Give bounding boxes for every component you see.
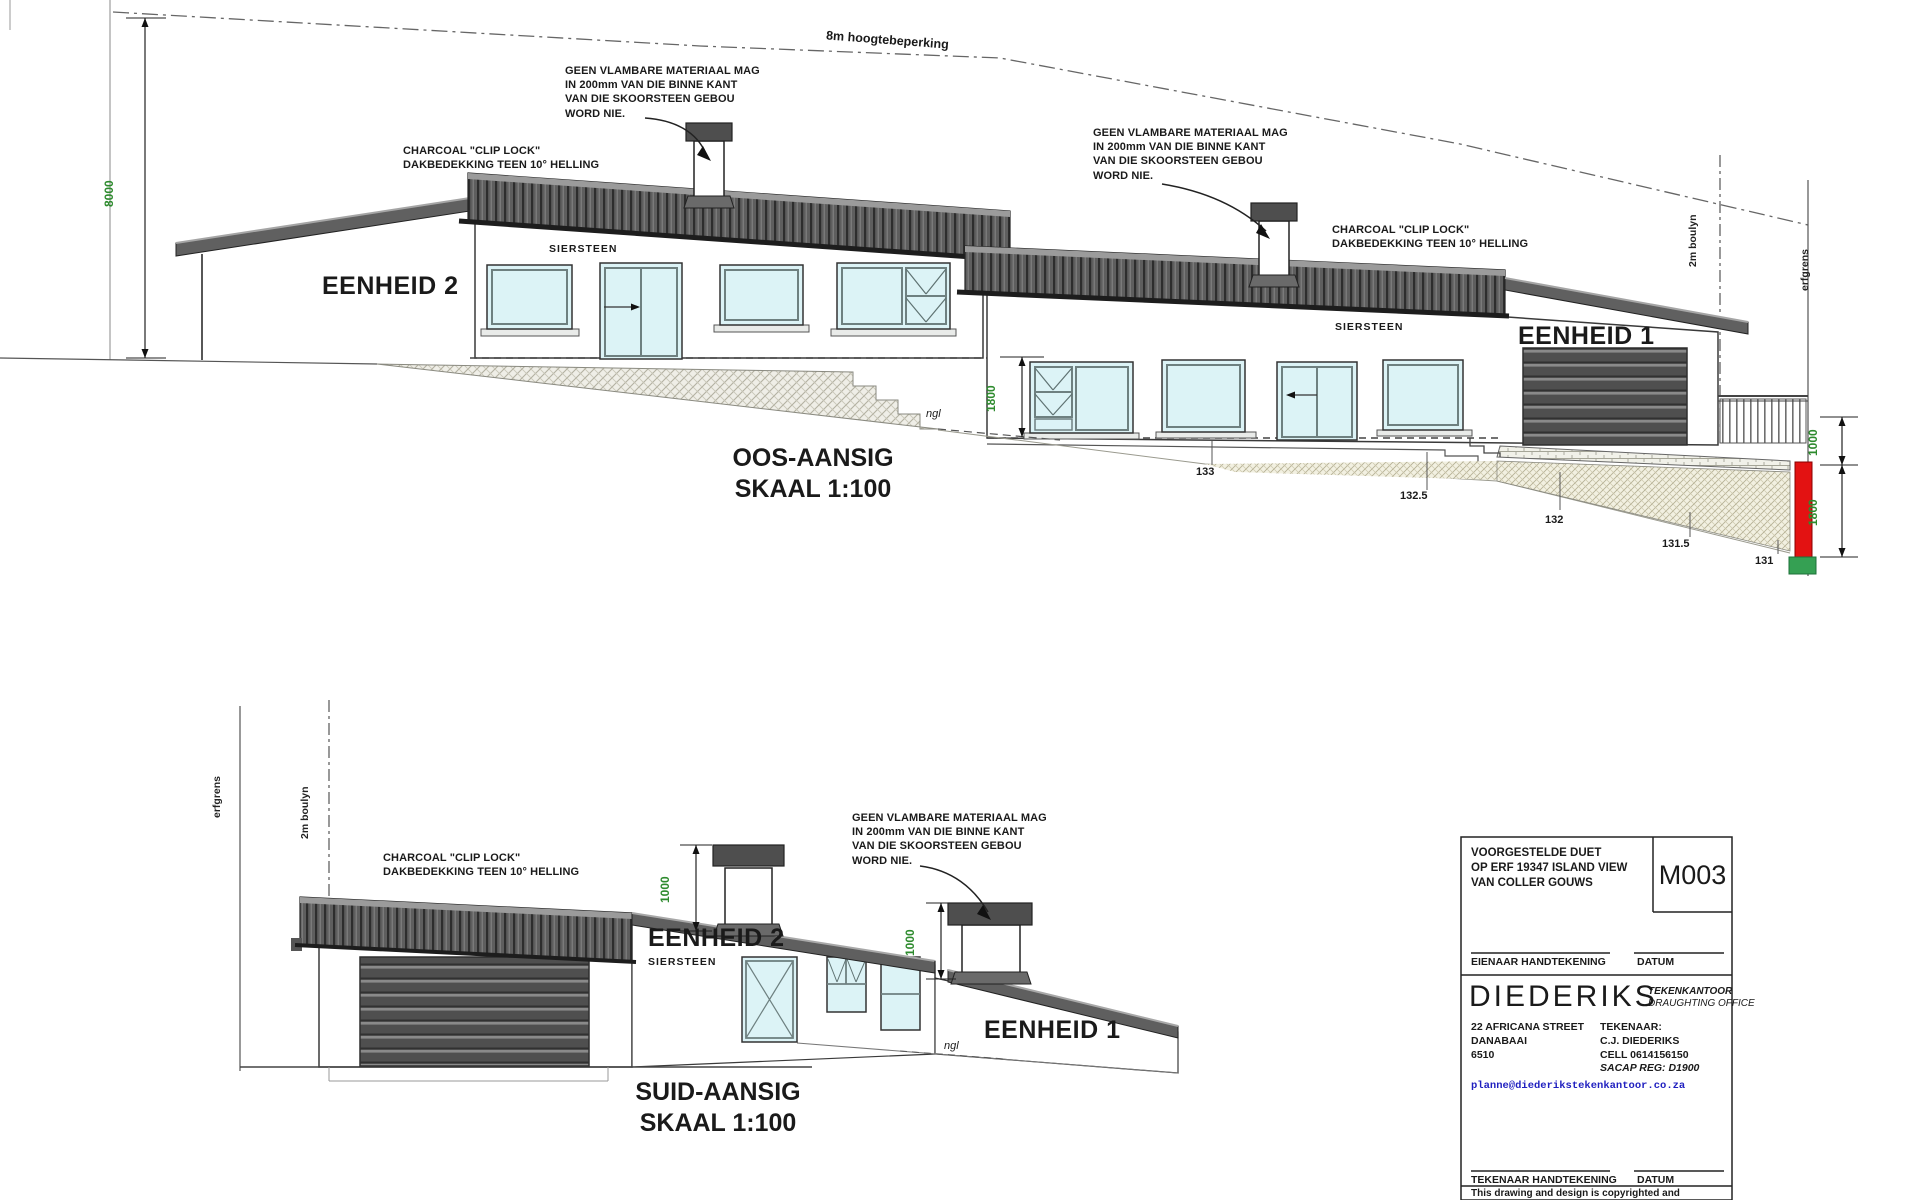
drafter-signature-label: TEKENAAR HANDTEKENING xyxy=(1471,1174,1617,1186)
unit2-label-south: EENHEID 2 xyxy=(648,924,784,953)
unit2-label-east: EENHEID 2 xyxy=(322,272,458,301)
boundary-label-east: erfgrens xyxy=(1798,249,1812,291)
siersteen-label-unit1-east: SIERSTEEN xyxy=(1335,321,1404,333)
ngl-label-south: ngl xyxy=(944,1040,959,1052)
ngl-label-east: ngl xyxy=(926,408,941,420)
siersteen-label-south: SIERSTEEN xyxy=(648,956,717,968)
roof-note-unit1-east: CHARCOAL "CLIP LOCK" DAKBEDEKKING TEEN 1… xyxy=(1332,223,1528,251)
firm-subtitle-eng: DRAUGHTING OFFICE xyxy=(1648,998,1755,1009)
firm-name: DIEDERIKS xyxy=(1469,980,1658,1014)
chimney-note-unit1-east: GEEN VLAMBARE MATERIAAL MAG IN 200mm VAN… xyxy=(1093,126,1288,183)
unit1-windows-east xyxy=(1024,348,1687,445)
roof-note-south: CHARCOAL "CLIP LOCK" DAKBEDEKKING TEEN 1… xyxy=(383,851,579,879)
dim-1800-right: 1800 xyxy=(1806,499,1820,526)
boundary-label-south: erfgrens xyxy=(210,776,224,818)
contour-131-5: 131.5 xyxy=(1662,538,1690,550)
siersteen-label-unit2-east: SIERSTEEN xyxy=(549,243,618,255)
unit1-label-east: EENHEID 1 xyxy=(1518,322,1654,351)
roof-note-unit2-east: CHARCOAL "CLIP LOCK" DAKBEDEKKING TEEN 1… xyxy=(403,144,599,172)
copyright-note: This drawing and design is copyrighted a… xyxy=(1471,1188,1680,1199)
owner-signature-label: EIENAAR HANDTEKENING xyxy=(1471,956,1606,968)
contour-132-5: 132.5 xyxy=(1400,490,1428,502)
dim-1000-chimney-left: 1000 xyxy=(658,876,672,903)
unit1-label-south: EENHEID 1 xyxy=(984,1016,1120,1045)
firm-address: 22 AFRICANA STREET DANABAAI 6510 xyxy=(1471,1020,1584,1062)
drafter-date-label: DATUM xyxy=(1637,1174,1674,1186)
contour-131: 131 xyxy=(1755,555,1773,567)
east-elevation-scale: SKAAL 1:100 xyxy=(663,475,963,504)
building-line-label-south: 2m boulyn xyxy=(298,786,312,839)
title-block-lines xyxy=(1461,837,1732,1200)
chimney-note-unit2-east: GEEN VLAMBARE MATERIAAL MAG IN 200mm VAN… xyxy=(565,64,760,121)
garage-door-south xyxy=(360,957,589,1066)
green-level-marker xyxy=(1789,557,1816,574)
dim-1000-chimney-right: 1000 xyxy=(903,929,917,956)
building-line-label-east: 2m boulyn xyxy=(1686,214,1700,267)
owner-date-label: DATUM xyxy=(1637,956,1674,968)
south-elevation-scale: SKAAL 1:100 xyxy=(568,1109,868,1138)
project-description: VOORGESTELDE DUET OP ERF 19347 ISLAND VI… xyxy=(1471,846,1627,891)
sacap-registration: SACAP REG: D1900 xyxy=(1600,1062,1699,1074)
south-elevation-title: SUID-AANSIG xyxy=(568,1078,868,1107)
railing-east xyxy=(1720,399,1806,443)
firm-subtitle-afr: TEKENKANTOOR xyxy=(1648,986,1732,997)
garage-door-east xyxy=(1523,348,1687,445)
east-elevation-title: OOS-AANSIG xyxy=(663,444,963,473)
dim-8000: 8000 xyxy=(102,180,116,207)
email-address[interactable]: planne@diederikstekenkantoor.co.za xyxy=(1471,1080,1685,1092)
drawing-sheet: 8m hoogtebeperking 8000 GEEN VLAMBARE MA… xyxy=(0,0,1908,1200)
contour-133: 133 xyxy=(1196,466,1214,478)
dim-1800-wall: 1800 xyxy=(984,385,998,412)
chimney-note-south: GEEN VLAMBARE MATERIAAL MAG IN 200mm VAN… xyxy=(852,811,1047,868)
dim-1000-right: 1000 xyxy=(1806,429,1820,456)
contour-132: 132 xyxy=(1545,514,1563,526)
drawing-number: M003 xyxy=(1653,860,1732,891)
drafter-info: TEKENAAR: C.J. DIEDERIKS CELL 0614156150 xyxy=(1600,1020,1689,1062)
